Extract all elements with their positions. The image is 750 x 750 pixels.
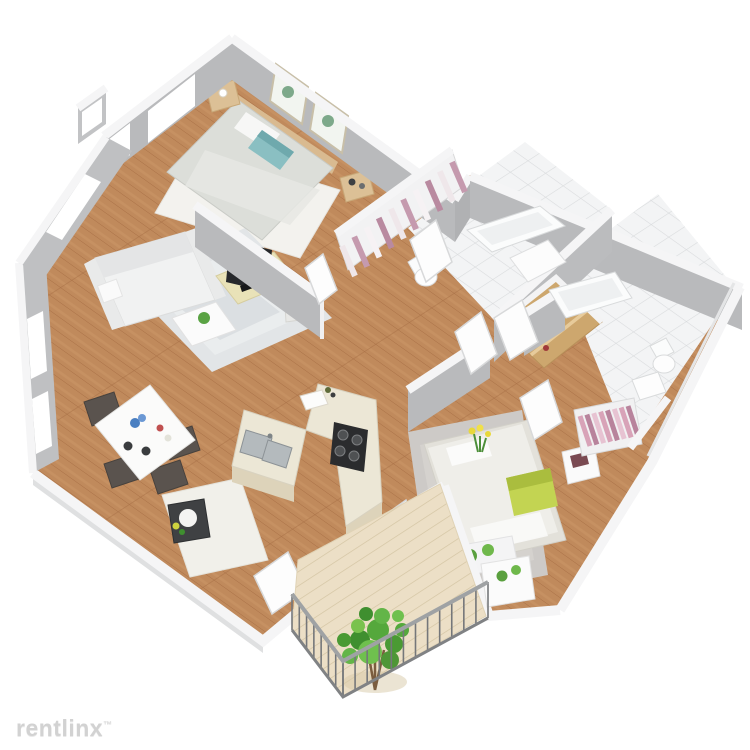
serving-tray-table <box>168 499 210 543</box>
balcony-planter <box>481 556 535 607</box>
kitchen-stove <box>330 422 368 472</box>
trademark-symbol: ™ <box>103 719 113 729</box>
rentlinx-watermark: rentlinx™ <box>16 715 113 742</box>
floorplan-3d-render: rentlinx™ <box>0 0 750 750</box>
brand-text: rentlinx <box>16 715 103 741</box>
floorplan-canvas <box>0 0 750 750</box>
